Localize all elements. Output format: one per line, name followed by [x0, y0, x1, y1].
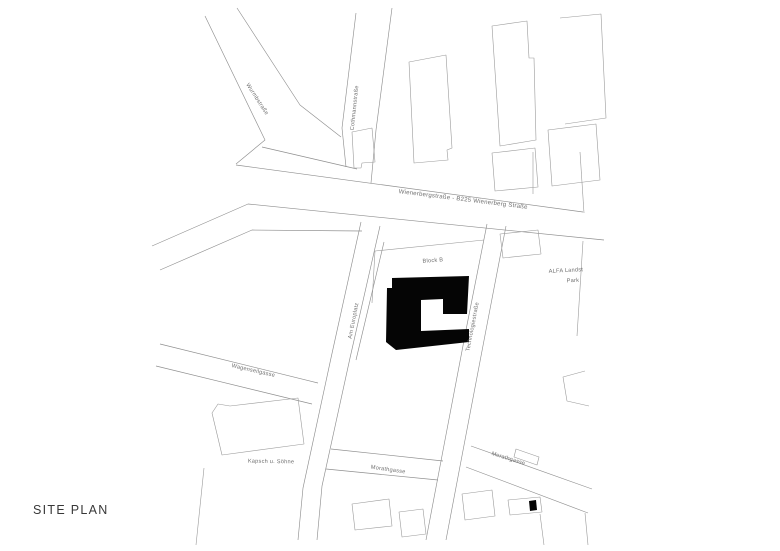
place-label-kapsch: Kapsch u. Söhne — [248, 459, 294, 466]
building-small-house-outline — [352, 128, 375, 168]
street-wagenseilgasse-lower-line — [156, 366, 312, 404]
building-mid-north-right-outline — [548, 124, 600, 186]
street-am-europlatz-inner-line — [356, 242, 384, 360]
building-top-right-outline — [560, 14, 606, 124]
building-garage-outline — [500, 230, 541, 258]
street-technologiestrasse-west-line — [426, 224, 487, 540]
street-junction-island-line — [262, 147, 357, 169]
page-title: SITE PLAN — [33, 503, 109, 517]
building-bottom-d-outline — [508, 497, 542, 515]
street-label-wienerbergstrasse: Wienerbergstraße - B225 Wienerberg Straß… — [398, 189, 528, 211]
parcel-line-bottom-right-a — [540, 514, 544, 545]
parcel-boundary-right-south — [577, 241, 583, 336]
street-wagenseilgasse-upper-line — [160, 344, 318, 383]
street-morathgasse-east-lower-line — [466, 467, 588, 513]
site-plan-page: Wurmbstraße Cothmannstraße Wienerbergstr… — [0, 0, 780, 551]
street-linework — [152, 8, 604, 540]
street-morathgasse-west-upper-line — [331, 449, 443, 461]
site-plan-map: Wurmbstraße Cothmannstraße Wienerbergstr… — [0, 0, 780, 551]
building-bottom-solid-mark — [529, 500, 537, 511]
street-am-europlatz-west-line — [298, 222, 361, 540]
building-top-a-outline — [409, 55, 452, 163]
building-kapsch-outline — [212, 398, 304, 455]
street-label-wurmbstrasse: Wurmbstraße — [244, 83, 269, 117]
place-label-alfa-park-line2: Park — [567, 278, 580, 285]
place-label-alfa-park-line1: ALFA Landst — [549, 267, 584, 275]
building-top-b-outline — [492, 21, 536, 146]
site-building-footprint — [386, 276, 469, 350]
building-mid-north-outline — [492, 148, 538, 191]
building-bottom-c-outline — [462, 490, 495, 520]
street-wienerbergstrasse-lower-line — [152, 204, 604, 246]
street-block-edge-line — [160, 230, 362, 270]
street-morathgasse-east-upper-line — [471, 446, 592, 489]
building-bottom-b-outline — [399, 509, 426, 537]
street-label-morathgasse-east: Morathgasse — [491, 451, 526, 467]
street-wienerbergstrasse-upper-line — [236, 165, 583, 212]
street-wurmbstrasse-west-line — [205, 16, 265, 164]
street-cothmannstrasse-east-line — [371, 8, 392, 183]
place-label-block-b: Block B — [422, 257, 443, 264]
parcel-line-bottom-left — [196, 468, 204, 545]
street-technologiestrasse-east-line — [446, 226, 506, 540]
street-label-wagenseilgasse: Wagenseilgasse — [231, 363, 276, 379]
street-am-europlatz-east-line — [317, 226, 380, 540]
parcel-line-bottom-right-b — [585, 513, 588, 545]
building-right-corner-outline — [563, 371, 589, 406]
street-label-technologiestrasse: Technologiestraße — [465, 302, 480, 352]
street-wurmbstrasse-east-line — [237, 8, 341, 137]
street-label-cothmannstrasse: Cothmannstraße — [350, 85, 361, 131]
building-bottom-a-outline — [352, 499, 392, 530]
